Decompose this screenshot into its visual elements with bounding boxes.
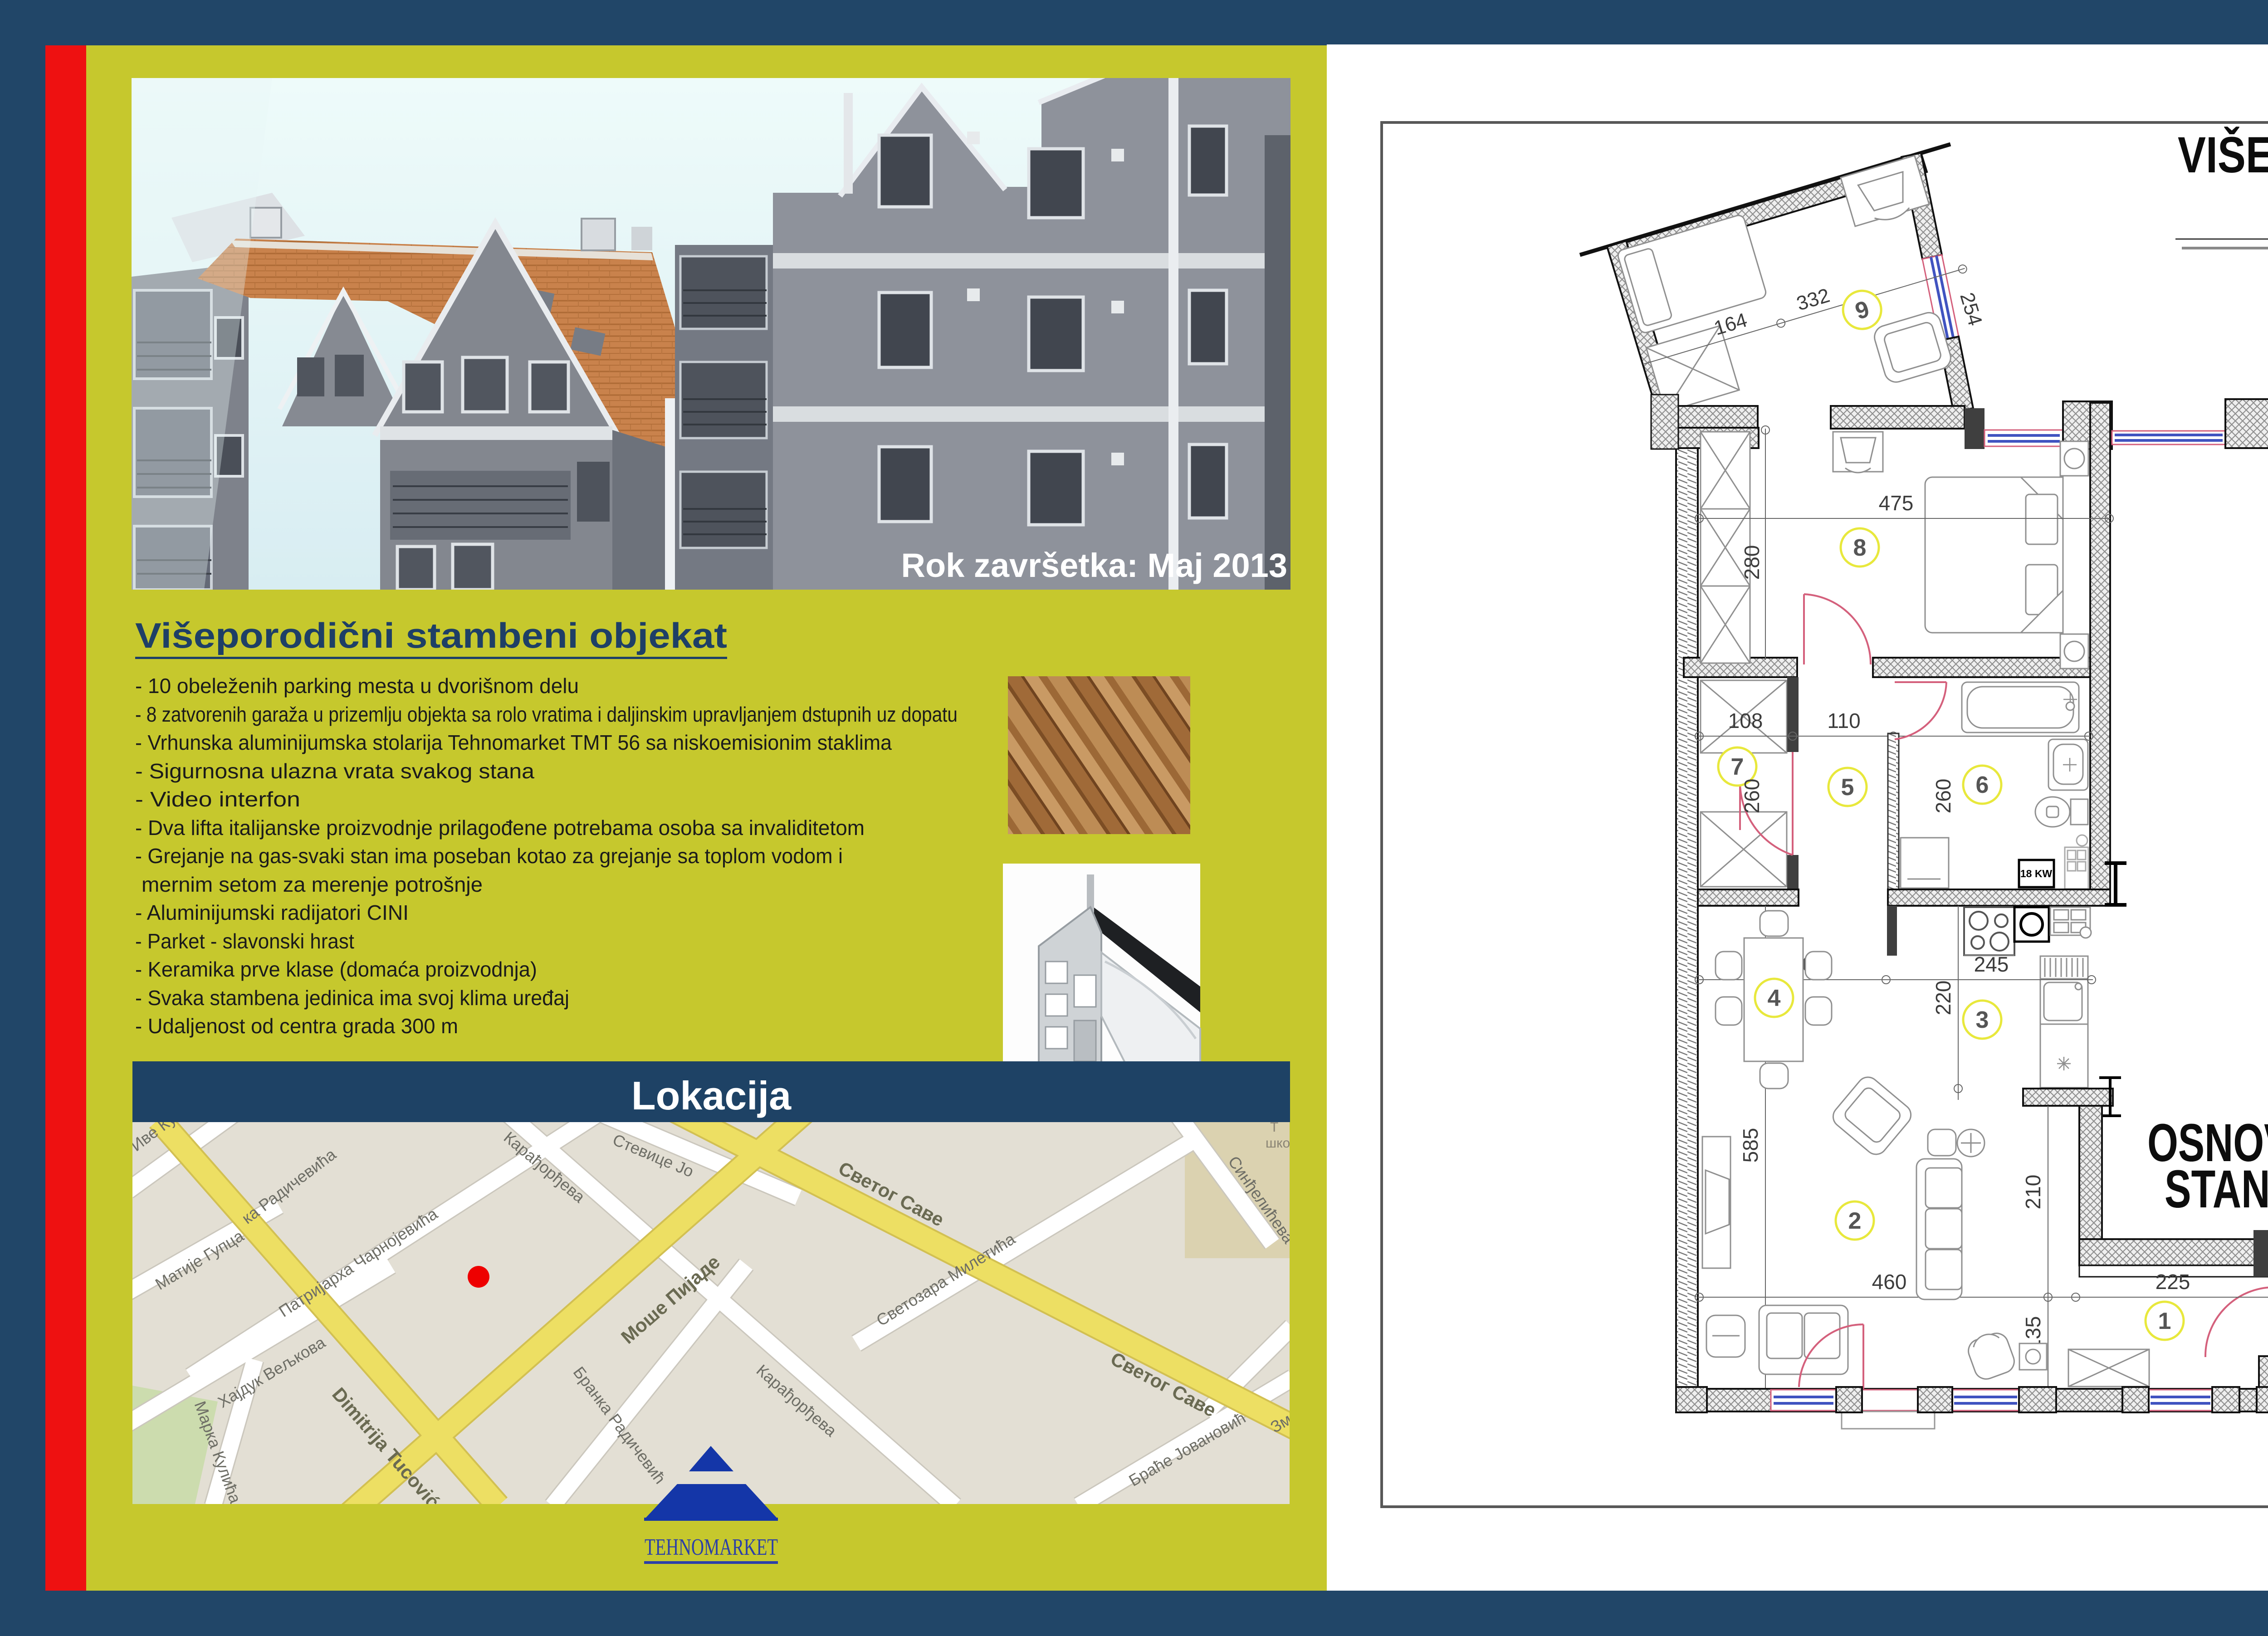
svg-text:110: 110 <box>1827 709 1860 733</box>
svg-text:- Udaljenost od centra grada 3: - Udaljenost od centra grada 300 m <box>135 1014 458 1038</box>
svg-text:3: 3 <box>1976 1007 1989 1033</box>
svg-text:1: 1 <box>2158 1308 2171 1334</box>
svg-text:- Keramika prve klase (domaća: - Keramika prve klase (domaća proizvodnj… <box>135 957 537 981</box>
svg-text:245: 245 <box>1974 952 2009 976</box>
svg-text:585: 585 <box>1739 1128 1762 1163</box>
svg-text:- Video interfon: - Video interfon <box>135 787 300 811</box>
svg-text:Lokacija: Lokacija <box>631 1073 792 1118</box>
svg-text:- 10 obeleženih parking mesta: - 10 obeleženih parking mesta u dvorišno… <box>135 674 579 698</box>
svg-text:220: 220 <box>1931 981 1955 1016</box>
svg-text:210: 210 <box>2021 1175 2045 1210</box>
svg-text:STANA: STANA <box>2165 1159 2268 1219</box>
svg-text:6: 6 <box>1976 772 1989 798</box>
svg-text:4: 4 <box>1768 985 1781 1011</box>
svg-text:VIŠEPORODIČNI STAMBENI OBJEKAT: VIŠEPORODIČNI STAMBENI OBJEKAT SPRATNOST… <box>2178 127 2268 183</box>
svg-text:- Svaka stambena jedinica ima: - Svaka stambena jedinica ima svoj klima… <box>135 986 569 1010</box>
svg-text:260: 260 <box>1740 779 1764 814</box>
svg-text:7: 7 <box>1731 754 1744 780</box>
svg-text:225: 225 <box>2156 1270 2190 1294</box>
svg-text:- Dva lifta italijanske proizv: - Dva lifta italijanske proizvodnje pril… <box>135 816 865 840</box>
svg-text:475: 475 <box>1879 491 1914 515</box>
svg-text:Rok završetka: Maj 2013: Rok završetka: Maj 2013 <box>901 547 1287 584</box>
svg-text:108: 108 <box>1728 709 1763 733</box>
svg-text:TEHNOMARKET: TEHNOMARKET <box>645 1534 778 1560</box>
svg-text:- Grejanje na gas-svaki stan i: - Grejanje na gas-svaki stan ima poseban… <box>135 844 843 868</box>
svg-text:5: 5 <box>1841 774 1854 801</box>
svg-text:- Parket - slavonski hrast: - Parket - slavonski hrast <box>135 929 354 953</box>
svg-text:2: 2 <box>1848 1208 1862 1234</box>
svg-text:280: 280 <box>1740 545 1764 580</box>
svg-text:- Aluminijumski radijatori CIN: - Aluminijumski radijatori CINI <box>135 901 409 924</box>
svg-text:- Vrhunska aluminijumska stola: - Vrhunska aluminijumska stolarija Tehno… <box>135 731 892 754</box>
svg-text:18 KW: 18 KW <box>2020 868 2053 879</box>
svg-text:- 8 zatvorenih garaža u prizem: - 8 zatvorenih garaža u prizemlju objekt… <box>135 703 958 726</box>
svg-text:260: 260 <box>1931 779 1955 814</box>
svg-text:- Sigurnosna ulazna vrata svak: - Sigurnosna ulazna vrata svakog stana <box>135 759 534 783</box>
svg-text:mernim setom za merenje potroš: mernim setom za merenje potrošnje <box>142 873 483 896</box>
svg-text:шко: шко <box>1266 1136 1290 1151</box>
svg-text:Višeporodični stambeni objekat: Višeporodični stambeni objekat <box>135 615 727 655</box>
svg-text:8: 8 <box>1853 535 1867 561</box>
svg-text:460: 460 <box>1872 1270 1907 1294</box>
